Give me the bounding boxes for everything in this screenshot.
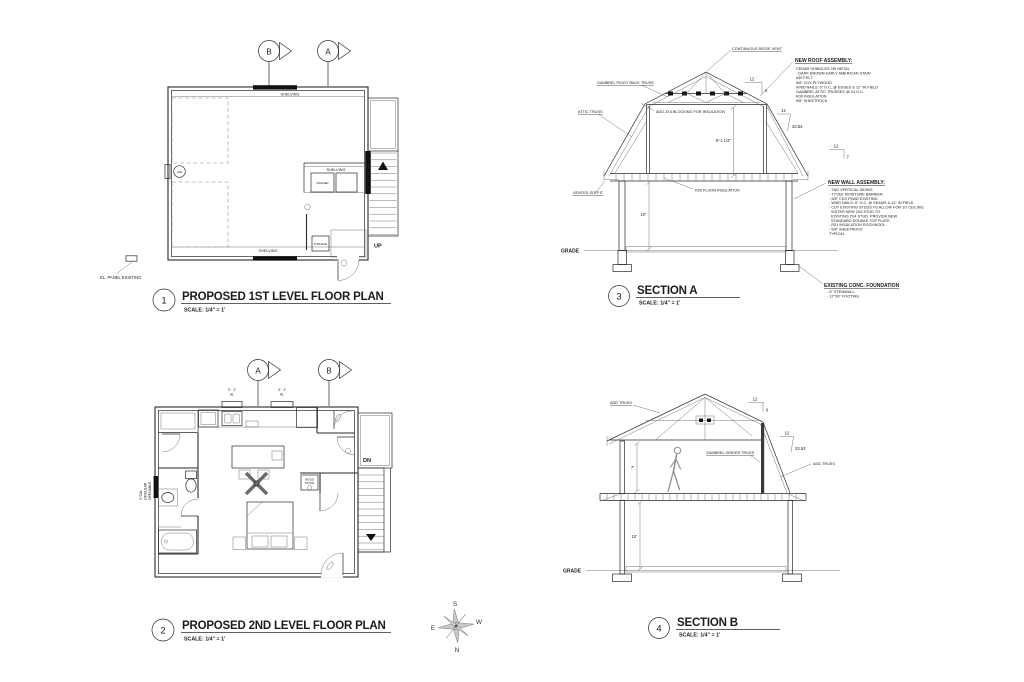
slope-upper-run-a: 12 [750,77,755,82]
foundation-note-line: - 12"X8" FOOTING [827,294,859,298]
girder-truss-label: GAMBREL GIRDER TRUSS [706,451,755,455]
grade-b-label: GRADE [563,569,582,575]
slope-lower-rise-b: 33.53 [795,446,806,451]
section-b-number: 4 [656,624,661,635]
roof-note-line: 5/8" SHEETROCK [796,99,828,103]
wall-note-line: - T&G VERTICAL SIDING [829,188,873,192]
section-a-number: 3 [616,292,621,303]
section-a-scale: SCALE: 1/4" = 1' [639,301,680,307]
wall-note-line: - CUT EXISTING STUDS TO ALLOW FOR 10' CE… [829,206,924,210]
marker-a-label: A [325,48,331,57]
dn-label: DN [363,458,371,464]
window-2-size: 3' - 2' [278,388,286,392]
wall-note-line: - W/8D NAILS: 6" O.C. @ SEAMS & 12" IN F… [829,201,914,205]
attic-truss-label: ATTIC TRUSS [578,110,603,114]
section-b-title: SECTION B [677,617,738,629]
section-b-scale: SCALE: 1/4" = 1' [679,633,720,639]
up-label: UP [374,244,382,250]
roof-note-line: 5/8" CDX PLYWOOD [796,81,832,85]
compass-south: S [453,601,458,608]
drawing-sheet: B A SHELVING SHELVING H/W [0,0,1024,682]
washer-label: WASHER [316,181,328,185]
compass-east: E [431,625,436,632]
shelving-bottom-label: SHELVING [259,249,278,253]
slope-lower-rise-a: 33.53 [792,124,803,129]
grade-a-label: GRADE [561,249,580,255]
window-1-type: SL [230,393,234,397]
marker-a2-label: A [255,367,261,376]
wall-note-line: SISTER NEW 2X6 STUD TO [831,210,880,214]
section-a-title: SECTION A [637,285,697,297]
wall-note-line: - 5/8" SHEETROCK [829,228,863,232]
plan2-scale: SCALE: 1/4" = 1' [184,637,225,643]
shelving-right-label: SHELVING [327,168,346,172]
vented-soffit-label: VENTED SOFFIT [573,191,604,195]
wall-note-line: - 5/8" CDX PLWD EXISTING [829,197,878,201]
compass-west: W [476,619,483,626]
plan1-title: PROPOSED 1ST LEVEL FLOOR PLAN [182,291,384,303]
hw-label: H/W [177,170,183,174]
roof-note-line: - DARK BROWN EARLY AMERICAN STAIN [796,72,871,76]
round-window-l2: CIRCULAR [144,482,148,500]
attic-height-b: 7' [631,465,634,470]
roof-note-line: CEDAR SHINGLES OR METAL [796,67,850,71]
plan2-title: PROPOSED 2ND LEVEL FLOOR PLAN [182,620,386,632]
el-panel-label: EL. PANEL EXISTING [100,275,141,280]
shelving-top-label: SHELVING [281,92,300,96]
wall-note-line: - TYVEK MOISTURE BARRIER [829,192,883,196]
marker-b2-label: B [326,367,331,376]
compass-north: N [455,647,460,654]
roof-note-line: R30 INSULATION [796,95,827,99]
roof-note-line: GAMBREL ATTIC TRUSSES @ 24 O.C. [796,90,864,94]
add-truss-left-label: ADD TRUSS [610,401,632,405]
first-floor-height-b: 10' [632,534,638,539]
marker-b-label: B [266,48,271,57]
window-2-type: SL [280,393,284,397]
window-1-size: 3' - 2' [228,388,236,392]
plan1-scale: SCALE: 1/4" = 1' [184,308,225,314]
foundation-title: EXISTING CONC. FOUNDATION [824,283,900,289]
slope-upper-run-b: 12 [753,397,758,402]
slope-lower-run-b: 12 [785,431,790,436]
wall-note-line: TYPICAL [829,232,845,236]
piggyback-truss-label: GAMBREL PIGGY BACK TRUSS [597,81,654,85]
wall-note-line: EXISTING 2X4 STUD, PROVIDE NEW [831,214,897,218]
floor-insulation-label: R30 FLOOR INSULATION [695,189,740,193]
attic-height-a: 9'-1 1/2" [716,138,732,143]
wall-note-line: - R21 INSULATION ROCKWOOL [829,223,885,227]
slope-lower-run-a: 12 [781,108,786,113]
wall-note-line: STANDARD DOUBLE TOP PLATE. [831,219,891,223]
ridge-vent-label: CONTINUOUS RIDGE VENT [732,47,782,51]
plan2-number: 2 [160,626,165,637]
wood-stove-l2: STOVE [305,481,315,485]
roof-note-line: W/8D NAILS: 6" O.C. @ EDGES & 12" IN FIE… [796,85,878,89]
sheet-background [0,0,1024,682]
wall-assembly-title: NEW WALL ASSEMBLY: [828,180,885,186]
foundation-note-line: - 6" STEMWALL [827,290,855,294]
plan1-number: 1 [161,296,166,307]
blocking-note-label: ADD 2X4 BLOCKING FOR INSULATION [656,110,725,114]
girder-truss-member [761,423,764,494]
furnace-label: FURNACE [314,242,328,246]
round-window-l3: OPENABLE [148,481,152,500]
roof-note-line: #30 FELT [796,76,813,80]
add-truss-right-label: ADD TRUSS [813,462,835,466]
roof-assembly-title: NEW ROOF ASSEMBLY: [795,58,853,64]
slope-eave-run-a: 12 [834,144,839,149]
round-window-l1: 3' DIA. [139,490,143,500]
first-floor-height-a: 10' [641,212,647,217]
architectural-plan-svg: B A SHELVING SHELVING H/W [0,0,1024,682]
